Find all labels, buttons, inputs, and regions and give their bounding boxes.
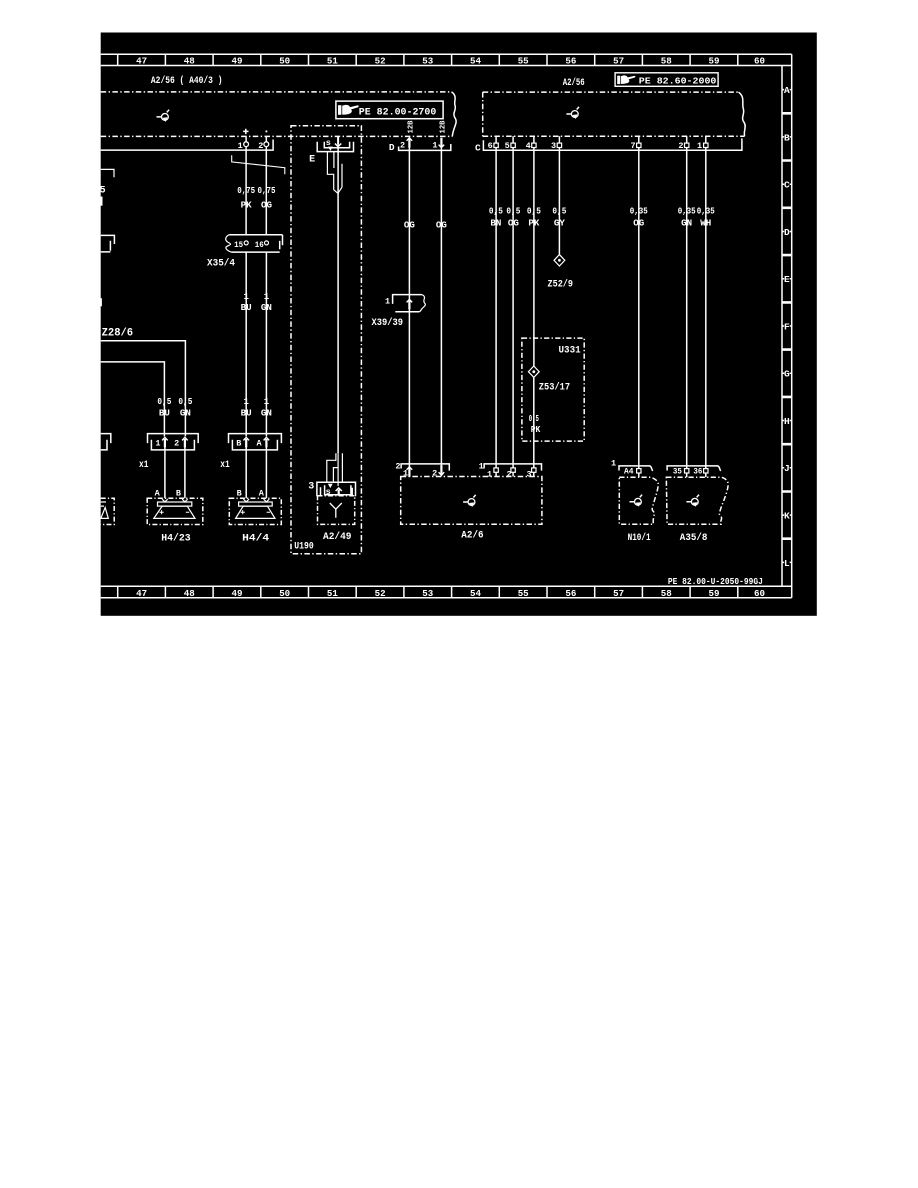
svg-text:A2/56 ( A40/3 ): A2/56 ( A40/3 ): [151, 75, 223, 87]
svg-text:35: 35: [673, 468, 682, 477]
svg-text:51: 51: [327, 56, 338, 67]
svg-text:F: F: [784, 321, 790, 332]
svg-text:A2/49: A2/49: [323, 531, 352, 543]
svg-text:0,75: 0,75: [237, 186, 255, 196]
svg-text:12B: 12B: [440, 120, 448, 133]
svg-text:5: 5: [505, 141, 510, 151]
svg-text:51: 51: [327, 588, 338, 599]
svg-text:3: 3: [308, 481, 314, 492]
svg-text:PK: PK: [241, 201, 253, 211]
svg-text:OG: OG: [436, 221, 447, 231]
svg-text:0,5: 0,5: [178, 397, 192, 407]
svg-text:U331: U331: [559, 346, 581, 357]
svg-text:GN: GN: [681, 219, 692, 229]
svg-text:58: 58: [661, 588, 672, 599]
svg-text:J: J: [784, 463, 790, 474]
svg-text:56: 56: [565, 56, 576, 67]
svg-text:A: A: [256, 438, 262, 448]
svg-text:B: B: [236, 438, 241, 448]
svg-text:36: 36: [693, 468, 702, 477]
svg-text:3: 3: [526, 470, 531, 480]
svg-text:BN: BN: [490, 219, 501, 229]
svg-text:54: 54: [470, 56, 481, 67]
svg-text:0,35: 0,35: [678, 207, 696, 217]
svg-text:60: 60: [754, 56, 765, 67]
svg-text:49: 49: [232, 588, 243, 599]
svg-text:59: 59: [709, 588, 720, 599]
svg-text:2: 2: [174, 438, 179, 448]
svg-text:47: 47: [136, 56, 147, 67]
svg-text:PE 82.60-2000: PE 82.60-2000: [639, 76, 717, 87]
svg-text:0,5: 0,5: [506, 207, 520, 217]
svg-text:D: D: [389, 142, 395, 153]
svg-text:49: 49: [232, 56, 243, 67]
svg-text:N10/1: N10/1: [628, 532, 651, 544]
svg-text:0,5: 0,5: [527, 207, 541, 217]
svg-text:6: 6: [488, 141, 493, 151]
svg-text:48: 48: [184, 588, 195, 599]
svg-text:U190: U190: [294, 541, 314, 553]
svg-text:53: 53: [422, 56, 433, 67]
svg-text:C: C: [475, 142, 481, 153]
svg-text:2: 2: [400, 141, 405, 151]
svg-text:1: 1: [243, 397, 249, 407]
svg-text:50: 50: [279, 56, 290, 67]
svg-text:OG: OG: [508, 219, 519, 229]
svg-text:57: 57: [613, 588, 624, 599]
svg-text:1: 1: [432, 141, 437, 151]
svg-text:54: 54: [470, 588, 481, 599]
svg-text:A2/56: A2/56: [563, 77, 585, 89]
svg-text:GN: GN: [261, 303, 272, 313]
svg-text:52: 52: [375, 588, 386, 599]
svg-text:H4/23: H4/23: [161, 532, 191, 544]
svg-text:0,35: 0,35: [697, 207, 715, 217]
svg-text:1: 1: [155, 438, 160, 448]
svg-text:52: 52: [375, 56, 386, 67]
svg-text:2: 2: [395, 461, 400, 471]
svg-text:x1: x1: [139, 460, 149, 471]
svg-text:60: 60: [754, 588, 765, 599]
svg-text:GY: GY: [554, 219, 566, 229]
svg-text:58: 58: [661, 56, 672, 67]
svg-text:H4/4: H4/4: [242, 532, 269, 544]
svg-text:A4: A4: [624, 468, 634, 477]
svg-text:0,5: 0,5: [552, 207, 566, 217]
svg-text:A2/6: A2/6: [461, 529, 483, 541]
svg-text:A: A: [155, 488, 161, 498]
svg-text:Z28/6: Z28/6: [102, 328, 134, 340]
svg-text:59: 59: [709, 56, 720, 67]
svg-text:1: 1: [611, 459, 616, 469]
svg-text:1: 1: [264, 397, 270, 407]
svg-text:57: 57: [613, 56, 624, 67]
svg-text:BU: BU: [241, 408, 252, 418]
svg-text:2: 2: [678, 141, 683, 151]
svg-text:16: 16: [255, 240, 264, 250]
svg-text:GN: GN: [261, 408, 272, 418]
svg-text:1: 1: [238, 141, 243, 151]
svg-text:PE 82.00-U-2050-99GJ: PE 82.00-U-2050-99GJ: [668, 576, 763, 587]
svg-text:B: B: [784, 132, 790, 143]
svg-text:X35/4: X35/4: [207, 257, 235, 269]
svg-text:A: A: [784, 85, 790, 96]
svg-text:1: 1: [487, 470, 492, 480]
svg-text:H: H: [784, 416, 790, 427]
svg-text:L: L: [784, 558, 790, 569]
svg-text:50: 50: [279, 588, 290, 599]
svg-text:0,5: 0,5: [157, 397, 171, 407]
svg-text:47: 47: [136, 588, 147, 599]
svg-text:GN: GN: [180, 408, 191, 418]
svg-text:A: A: [259, 488, 265, 498]
svg-text:B: B: [237, 488, 242, 498]
svg-text:X39/39: X39/39: [372, 317, 404, 329]
svg-text:3: 3: [551, 141, 556, 151]
svg-text:OG: OG: [261, 201, 272, 211]
svg-text:0,75: 0,75: [258, 186, 276, 196]
svg-text:C: C: [784, 180, 790, 191]
svg-text:PE 82.00-2700: PE 82.00-2700: [359, 106, 437, 118]
svg-text:B: B: [176, 488, 181, 498]
svg-text:4: 4: [526, 141, 531, 151]
svg-text:A35/8: A35/8: [680, 532, 708, 544]
svg-text:48: 48: [184, 56, 195, 67]
svg-text:Z52/9: Z52/9: [548, 279, 574, 291]
svg-text:K: K: [784, 511, 790, 522]
svg-text:15: 15: [234, 240, 243, 250]
svg-text:1: 1: [479, 461, 484, 471]
svg-text:12B: 12B: [408, 120, 416, 133]
svg-text:Z53/17: Z53/17: [539, 382, 570, 394]
svg-text:WH: WH: [700, 219, 711, 229]
svg-text:G: G: [784, 369, 790, 380]
svg-text:1: 1: [697, 141, 702, 151]
svg-text:0,5: 0,5: [489, 207, 503, 217]
svg-text:1: 1: [385, 296, 390, 306]
svg-text:55: 55: [518, 588, 529, 599]
svg-text:0,35: 0,35: [630, 207, 648, 217]
svg-text:1: 1: [243, 292, 249, 302]
svg-text:x1: x1: [220, 460, 230, 471]
svg-text:OG: OG: [633, 219, 644, 229]
svg-text:PK: PK: [528, 219, 540, 229]
svg-text:D: D: [784, 227, 790, 238]
svg-text:s: s: [326, 138, 331, 148]
svg-text:56: 56: [565, 588, 576, 599]
svg-text:55: 55: [518, 56, 529, 67]
svg-text:BU: BU: [159, 408, 170, 418]
svg-text:0,5: 0,5: [529, 414, 539, 424]
svg-text:PK: PK: [531, 425, 541, 435]
svg-text:1: 1: [264, 292, 270, 302]
svg-text:5: 5: [100, 185, 106, 196]
svg-text:E: E: [784, 274, 790, 285]
svg-text:7: 7: [630, 141, 635, 151]
svg-text:OG: OG: [404, 221, 415, 231]
svg-text:E: E: [309, 155, 315, 166]
svg-text:2: 2: [258, 141, 263, 151]
svg-text:53: 53: [422, 588, 433, 599]
svg-text:BU: BU: [241, 303, 252, 313]
